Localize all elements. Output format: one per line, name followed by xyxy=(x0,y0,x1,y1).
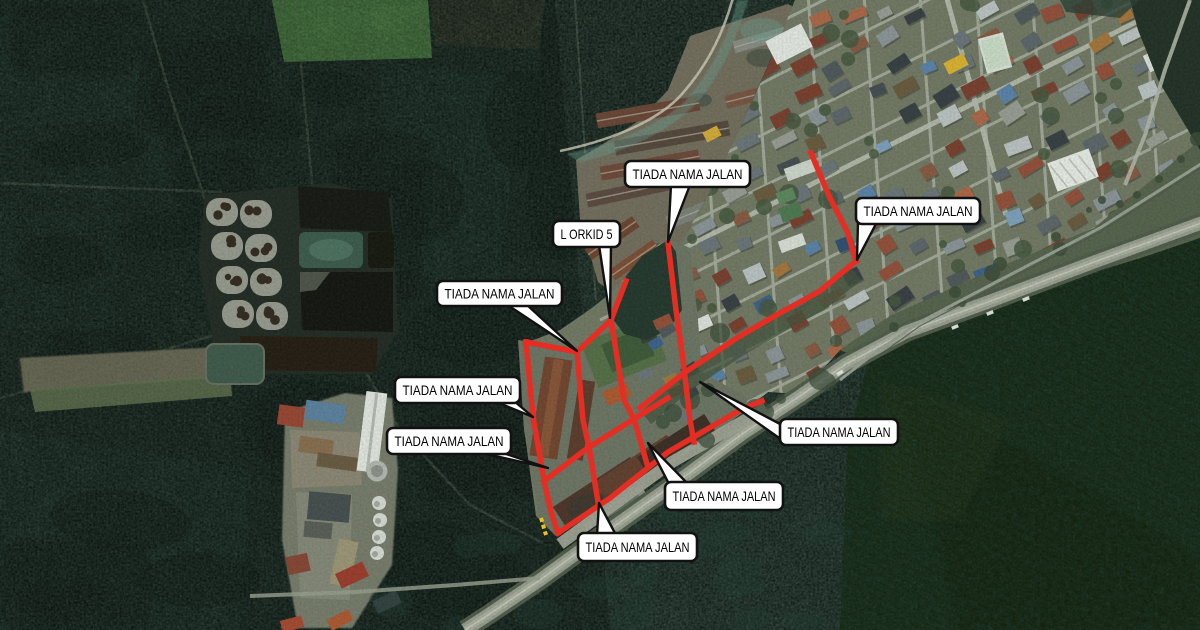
svg-text:TIADA NAMA JALAN: TIADA NAMA JALAN xyxy=(633,166,743,182)
svg-text:TIADA NAMA JALAN: TIADA NAMA JALAN xyxy=(864,203,973,219)
svg-text:TIADA NAMA JALAN: TIADA NAMA JALAN xyxy=(586,539,690,555)
svg-text:TIADA NAMA JALAN: TIADA NAMA JALAN xyxy=(673,488,776,504)
svg-text:TIADA NAMA JALAN: TIADA NAMA JALAN xyxy=(403,382,513,398)
svg-text:TIADA NAMA JALAN: TIADA NAMA JALAN xyxy=(395,433,504,449)
svg-text:TIADA NAMA JALAN: TIADA NAMA JALAN xyxy=(788,424,891,440)
svg-text:TIADA NAMA JALAN: TIADA NAMA JALAN xyxy=(445,286,555,302)
svg-text:L ORKID 5: L ORKID 5 xyxy=(561,226,613,242)
